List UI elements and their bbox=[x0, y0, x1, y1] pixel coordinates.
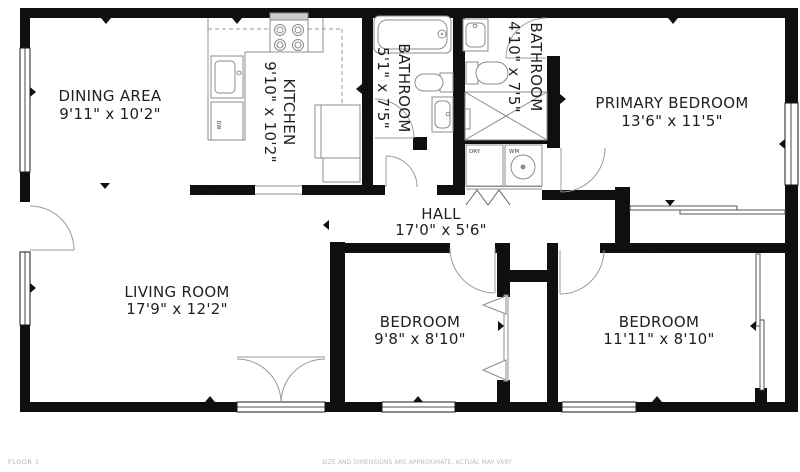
living-room-dims: 17'9" x 12'2" bbox=[126, 300, 228, 318]
openings bbox=[237, 185, 325, 412]
dining-name: DINING AREA bbox=[59, 87, 162, 105]
wall-hall-south-seg2 bbox=[495, 243, 510, 253]
wall-bottom-seg4 bbox=[636, 402, 798, 412]
kitchen-name: KITCHEN bbox=[280, 78, 298, 145]
dryer-label: DRY bbox=[469, 149, 481, 155]
wall-closet-east bbox=[547, 243, 558, 403]
bathroom1-dims: 5'1" x 7'5" bbox=[374, 47, 392, 129]
floor-plan-canvas: DW bbox=[0, 0, 800, 472]
wall-left-seg3 bbox=[20, 325, 30, 412]
bedroom2-dims: 11'11" x 8'10" bbox=[603, 330, 714, 348]
vanity-bathroom2 bbox=[463, 19, 488, 51]
wall-left-seg1 bbox=[20, 8, 30, 48]
bedroom2-closet-bypass-2 bbox=[760, 320, 764, 390]
wall-vestibule-south bbox=[437, 185, 465, 195]
wall-laundry-north bbox=[465, 140, 547, 144]
wall-living-bedroom1 bbox=[330, 242, 345, 412]
wall-bottom-seg3 bbox=[455, 402, 562, 412]
primary-bedroom-door bbox=[561, 148, 605, 192]
wall-right-seg2 bbox=[785, 185, 798, 412]
primary-closet-slider-2 bbox=[680, 210, 785, 214]
disclaimer: SIZE AND DIMENSIONS ARE APPROXIMATE, ACT… bbox=[322, 460, 512, 466]
living-room-name: LIVING ROOM bbox=[124, 283, 229, 301]
room-labels: DINING AREA 9'11" x 10'2" KITCHEN 9'10" … bbox=[59, 21, 749, 348]
toilet-bathroom1 bbox=[415, 73, 453, 92]
wall-closet-west-lower bbox=[497, 380, 510, 402]
bedroom2-closet-bypass-1 bbox=[756, 254, 760, 326]
dishwasher: DW bbox=[211, 102, 243, 140]
laundry-bifold-doors bbox=[466, 190, 510, 205]
hall-vestibule-door bbox=[386, 156, 417, 187]
primary-bedroom-name: PRIMARY BEDROOM bbox=[595, 94, 748, 112]
bedroom1-closet-door-2 bbox=[483, 360, 506, 380]
hall-dims: 17'0" x 5'6" bbox=[395, 221, 487, 239]
wall-closet-west-upper bbox=[497, 253, 510, 297]
wall-hall-south-seg1 bbox=[338, 243, 450, 253]
floor-plan-page: DW bbox=[0, 0, 800, 472]
bathroom2-dims: 4'10" x 7'5" bbox=[505, 21, 523, 113]
footer: FLOOR 1 SIZE AND DIMENSIONS ARE APPROXIM… bbox=[8, 458, 512, 466]
stove bbox=[270, 13, 308, 52]
laundry-closet: DRY WM bbox=[466, 145, 542, 205]
closet-doors bbox=[483, 206, 785, 390]
primary-bedroom-dims: 13'6" x 11'5" bbox=[621, 112, 723, 130]
wall-kitchen-east bbox=[362, 18, 373, 195]
toilet-bathroom2 bbox=[466, 62, 508, 84]
wall-hall-band bbox=[542, 190, 618, 200]
vanity-bathroom1 bbox=[432, 97, 453, 132]
floor-label: FLOOR 1 bbox=[8, 458, 40, 466]
bathroom2-name: BATHROOM bbox=[527, 22, 545, 111]
dishwasher-label: DW bbox=[215, 121, 221, 130]
kitchen-dims: 9'10" x 10'2" bbox=[261, 61, 279, 163]
primary-closet-slider-1 bbox=[630, 206, 737, 210]
refrigerator bbox=[315, 105, 360, 158]
washer-label: WM bbox=[509, 149, 519, 155]
bedroom1-door bbox=[450, 248, 495, 293]
washer-drum-center bbox=[521, 165, 526, 170]
bathroom1-name: BATHROOM bbox=[395, 43, 413, 132]
bedroom1-closet-door-1 bbox=[483, 296, 506, 314]
french-doors-living bbox=[237, 357, 325, 403]
wall-closet-divider bbox=[510, 270, 547, 282]
wall-bedroom2-north bbox=[600, 243, 798, 253]
wall-right-seg1 bbox=[785, 8, 798, 103]
kitchen-cabinet bbox=[323, 158, 360, 182]
wall-bath1-south-stub bbox=[413, 137, 427, 150]
window-primary-east bbox=[785, 103, 798, 185]
bedroom2-name: BEDROOM bbox=[619, 313, 699, 331]
wall-dining-south bbox=[190, 185, 255, 195]
bedroom1-name: BEDROOM bbox=[380, 313, 460, 331]
wall-bottom-seg1 bbox=[20, 402, 237, 412]
bedroom1-dims: 9'8" x 8'10" bbox=[374, 330, 466, 348]
wall-left-seg2 bbox=[20, 172, 30, 202]
entry-door bbox=[30, 206, 74, 250]
kitchen-sink bbox=[211, 56, 243, 98]
dining-dims: 9'11" x 10'2" bbox=[59, 105, 161, 123]
wall-primary-west bbox=[547, 56, 560, 148]
wall-closet-block bbox=[615, 187, 630, 247]
bedroom2-door bbox=[560, 250, 604, 294]
